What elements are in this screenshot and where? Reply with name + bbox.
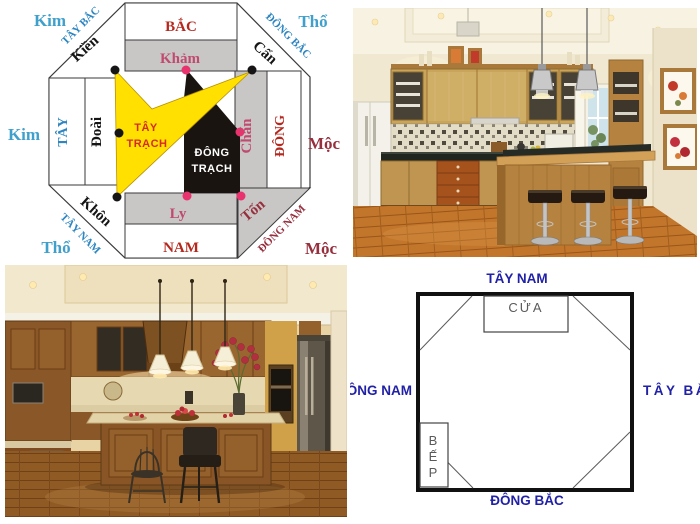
kitchen-photo-breakfast-bar xyxy=(353,8,697,257)
built-in-microwave xyxy=(13,383,43,403)
doai-dot xyxy=(115,129,124,138)
direction-north-label: BẮC xyxy=(165,18,197,35)
stove-box: B Ế P xyxy=(420,423,448,487)
stove-label-letter: P xyxy=(429,465,440,480)
kien-dot xyxy=(111,66,120,75)
west-group-caption-line1: TÂY xyxy=(134,121,158,134)
direction-south-label: NAM xyxy=(163,240,199,256)
left-countertop xyxy=(5,441,71,448)
feng-shui-kitchen-collage: Kim Thổ Kim Mộc Thổ Mộc BẮC NAM TÂY ĐÔNG… xyxy=(0,0,700,524)
can-dot xyxy=(248,66,257,75)
ly-dot xyxy=(183,192,192,201)
trigram-ly-label: Ly xyxy=(170,206,187,222)
kitchen-floor-plan-panel: CỬA B Ế P TÂY NAM ĐÔNG BẮC ĐÔNG NAM TÂY … xyxy=(350,262,700,524)
kitchen-photo-island xyxy=(5,265,347,517)
east-group-caption-line1: ĐÔNG xyxy=(195,146,230,159)
trigram-doai-label: Đoài xyxy=(89,117,105,147)
stove-label-letter: Ế xyxy=(429,449,440,464)
bat-trach-diagram-panel: Kim Thổ Kim Mộc Thổ Mộc BẮC NAM TÂY ĐÔNG… xyxy=(0,0,350,262)
direction-label-right: TÂY BẮC xyxy=(643,383,700,398)
glass-cabinet-door xyxy=(123,327,147,371)
direction-label-bottom: ĐÔNG BẮC xyxy=(490,493,564,508)
west-group-caption-line2: TRẠCH xyxy=(127,138,168,150)
direction-west-label: TÂY xyxy=(54,117,71,147)
door-box: CỬA xyxy=(484,296,568,332)
decorative-plate xyxy=(104,382,122,400)
glass-cabinet-door xyxy=(97,327,121,371)
element-moc-right: Mộc xyxy=(308,134,341,153)
direction-east-label: ĐÔNG xyxy=(271,115,288,157)
element-tho-bottom-left: Thổ xyxy=(41,238,71,257)
east-group-caption-line2: TRẠCH xyxy=(192,163,233,175)
direction-label-left: ĐÔNG NAM xyxy=(350,383,412,398)
direction-label-top: TÂY NAM xyxy=(486,271,547,286)
khon-dot xyxy=(113,193,122,202)
ceiling xyxy=(5,265,347,325)
element-kim-left: Kim xyxy=(8,125,40,144)
fruit-bowl xyxy=(171,413,199,421)
kitchen-photo-bottom-left-panel xyxy=(0,262,350,524)
right-wall xyxy=(653,28,697,240)
ton-dot xyxy=(237,192,246,201)
kitchen-photo-top-right-panel xyxy=(350,0,700,262)
trigram-chan-label: Chấn xyxy=(239,118,255,154)
element-moc-bottom-right: Mộc xyxy=(305,239,338,258)
door-label: CỬA xyxy=(508,300,543,315)
bat-trach-diagram: Kim Thổ Kim Mộc Thổ Mộc BẮC NAM TÂY ĐÔNG… xyxy=(0,0,350,262)
trigram-kham-label: Khảm xyxy=(160,51,201,67)
stove-label-letter: B xyxy=(429,433,440,448)
element-tho-top-right: Thổ xyxy=(298,12,328,31)
bar-stools xyxy=(528,186,647,245)
lower-cabinets xyxy=(381,161,507,209)
kitchen-floor-plan: CỬA B Ế P TÂY NAM ĐÔNG BẮC ĐÔNG NAM TÂY … xyxy=(350,262,700,524)
element-kim-top-left: Kim xyxy=(34,11,66,30)
